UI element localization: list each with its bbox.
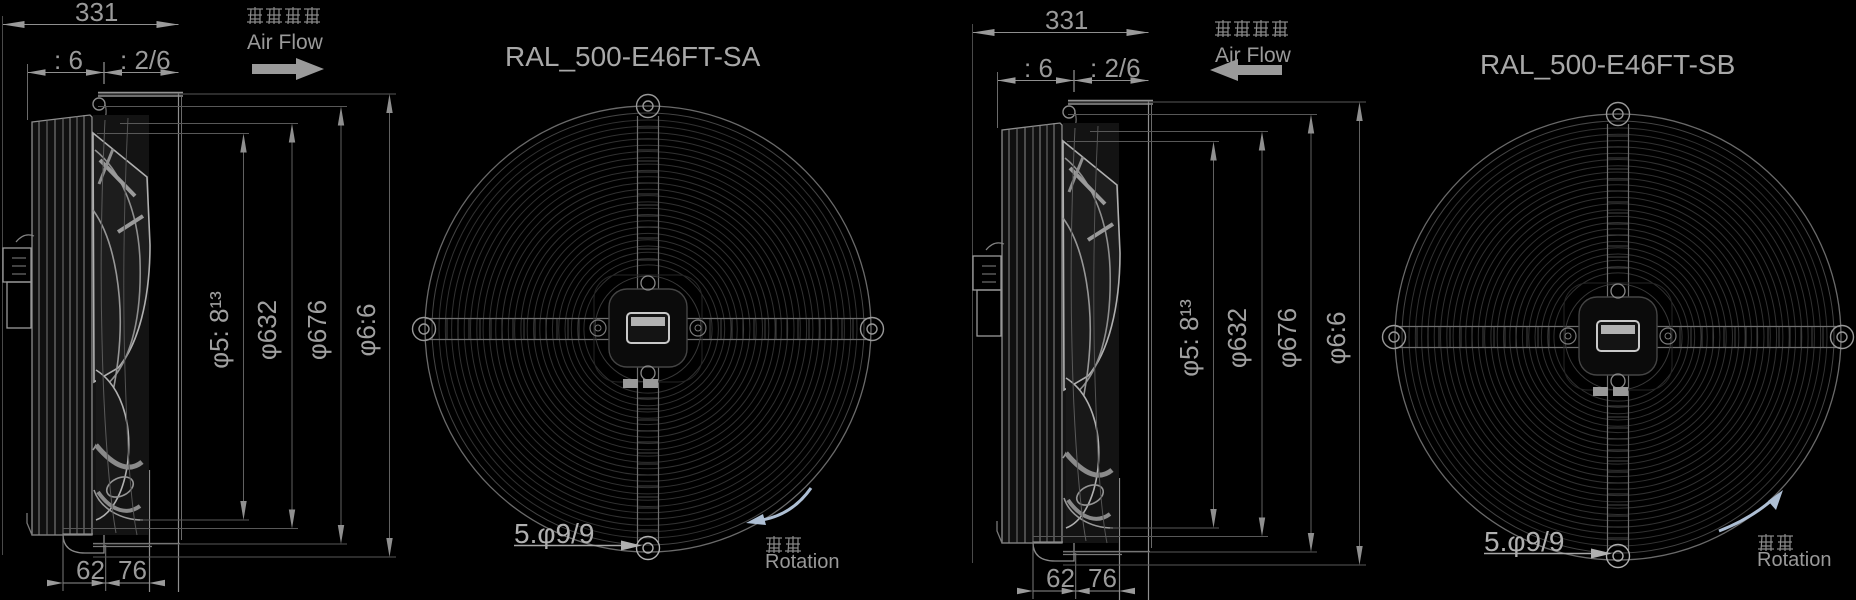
svg-text:RAL_500-E46FT-SA: RAL_500-E46FT-SA [505, 41, 761, 72]
svg-text:φ5: 8¹³: φ5: 8¹³ [1174, 299, 1204, 377]
svg-text:φ676: φ676 [1272, 308, 1302, 368]
svg-text:76: 76 [1088, 563, 1117, 593]
svg-text:76: 76 [118, 555, 147, 585]
svg-text:Rotation: Rotation [765, 551, 840, 573]
svg-text:5.φ9/9: 5.φ9/9 [1484, 526, 1564, 557]
svg-text:φ676: φ676 [302, 300, 332, 360]
svg-text:φ6:6: φ6:6 [351, 303, 381, 356]
svg-text:Air Flow: Air Flow [247, 31, 324, 54]
svg-text:331: 331 [75, 0, 118, 27]
svg-text:62: 62 [76, 555, 105, 585]
svg-text:62: 62 [1046, 563, 1075, 593]
svg-text:RAL_500-E46FT-SB: RAL_500-E46FT-SB [1480, 49, 1735, 80]
svg-text:: 6: : 6 [54, 45, 83, 75]
svg-text:: 6: : 6 [1024, 53, 1053, 83]
svg-text:331: 331 [1045, 5, 1088, 35]
svg-text:5.φ9/9: 5.φ9/9 [514, 518, 594, 549]
svg-text:φ5: 8¹³: φ5: 8¹³ [204, 291, 234, 369]
svg-text:φ6:6: φ6:6 [1321, 311, 1351, 364]
svg-text:Rotation: Rotation [1757, 549, 1832, 571]
svg-text:φ632: φ632 [252, 300, 282, 360]
svg-text:φ632: φ632 [1222, 308, 1252, 368]
